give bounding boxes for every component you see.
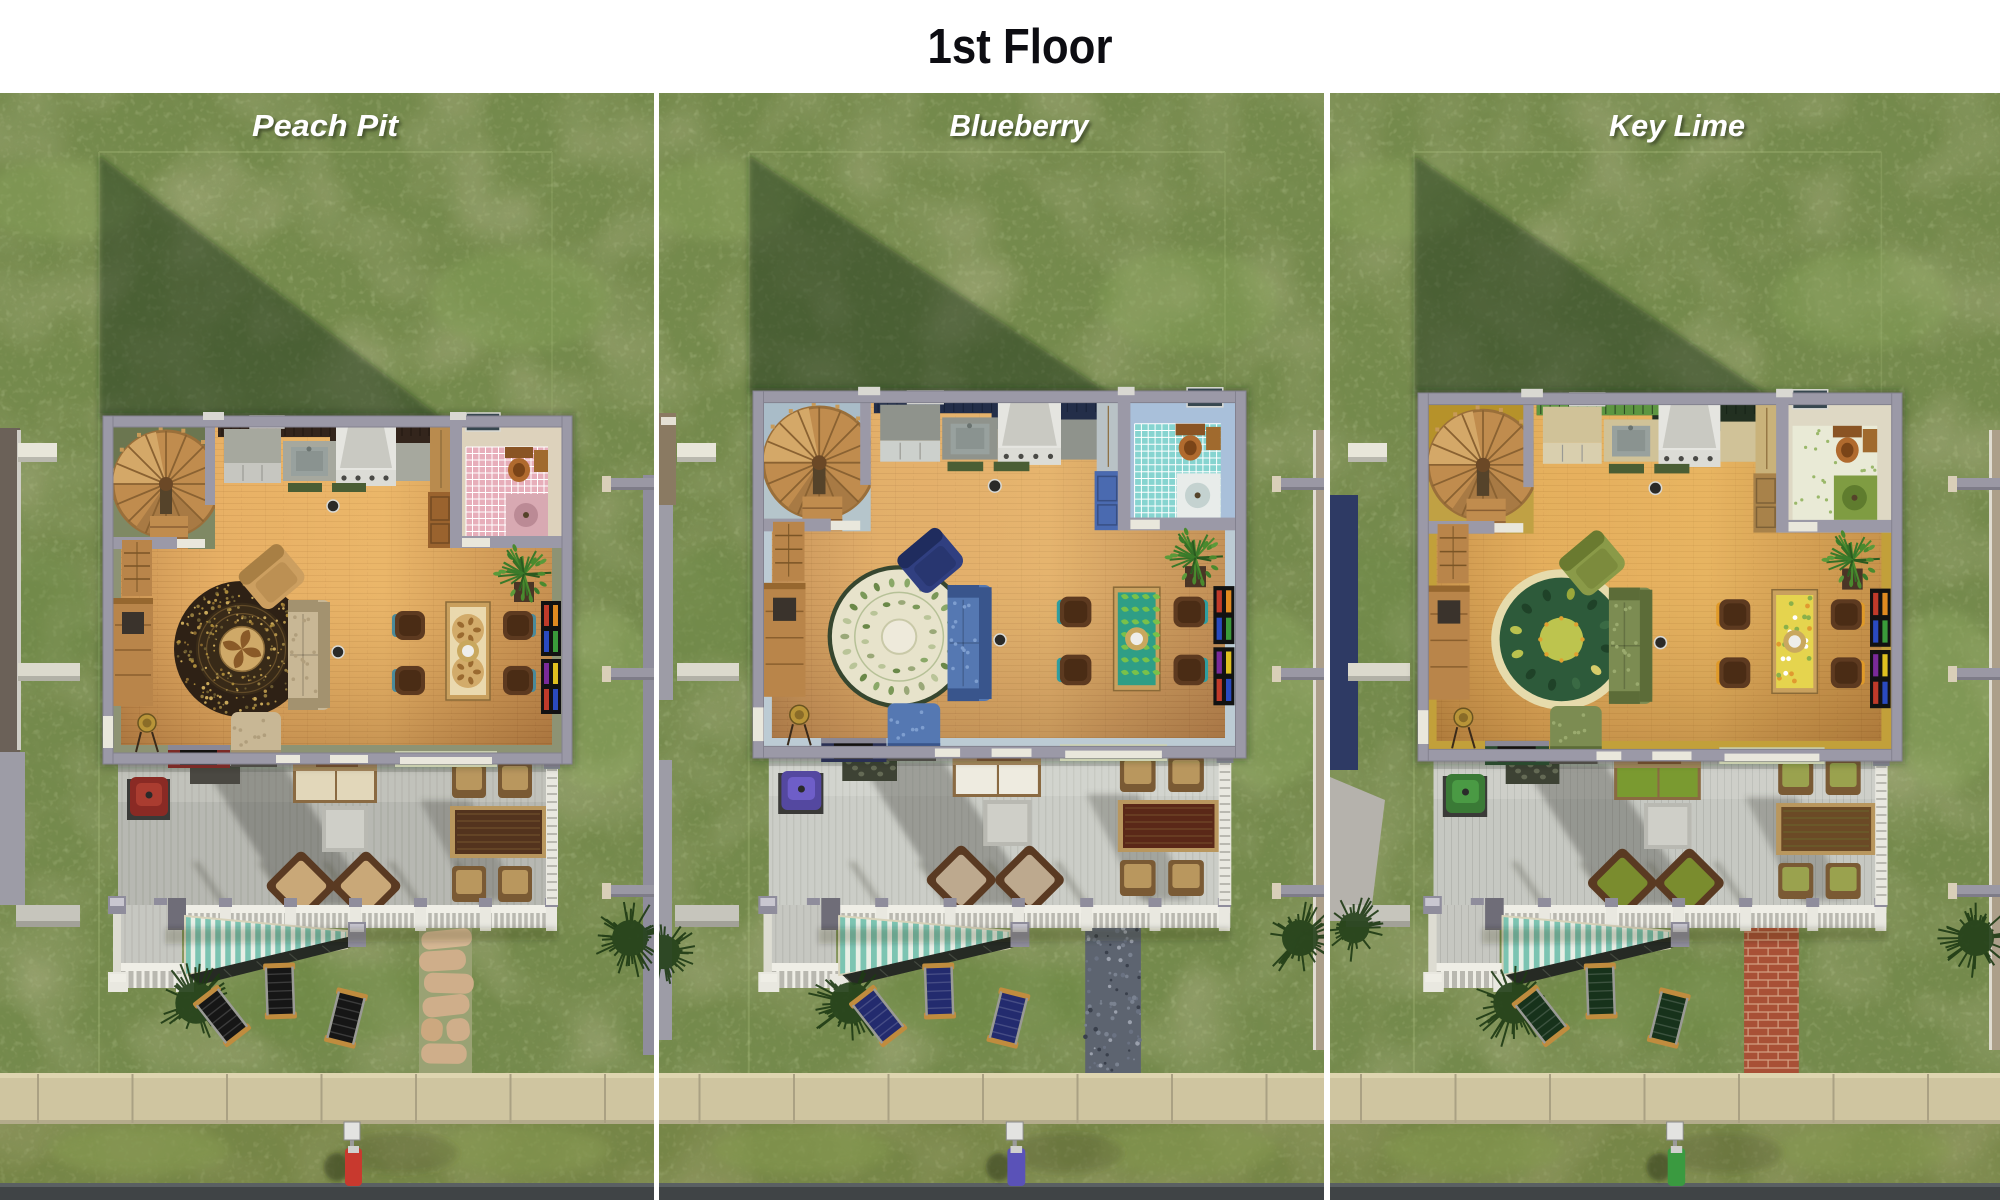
svg-text:1st Floor: 1st Floor xyxy=(928,20,1113,74)
svg-text:Peach Pit: Peach Pit xyxy=(252,108,400,143)
svg-text:Blueberry: Blueberry xyxy=(950,108,1091,143)
svg-text:Key Lime: Key Lime xyxy=(1609,108,1745,143)
